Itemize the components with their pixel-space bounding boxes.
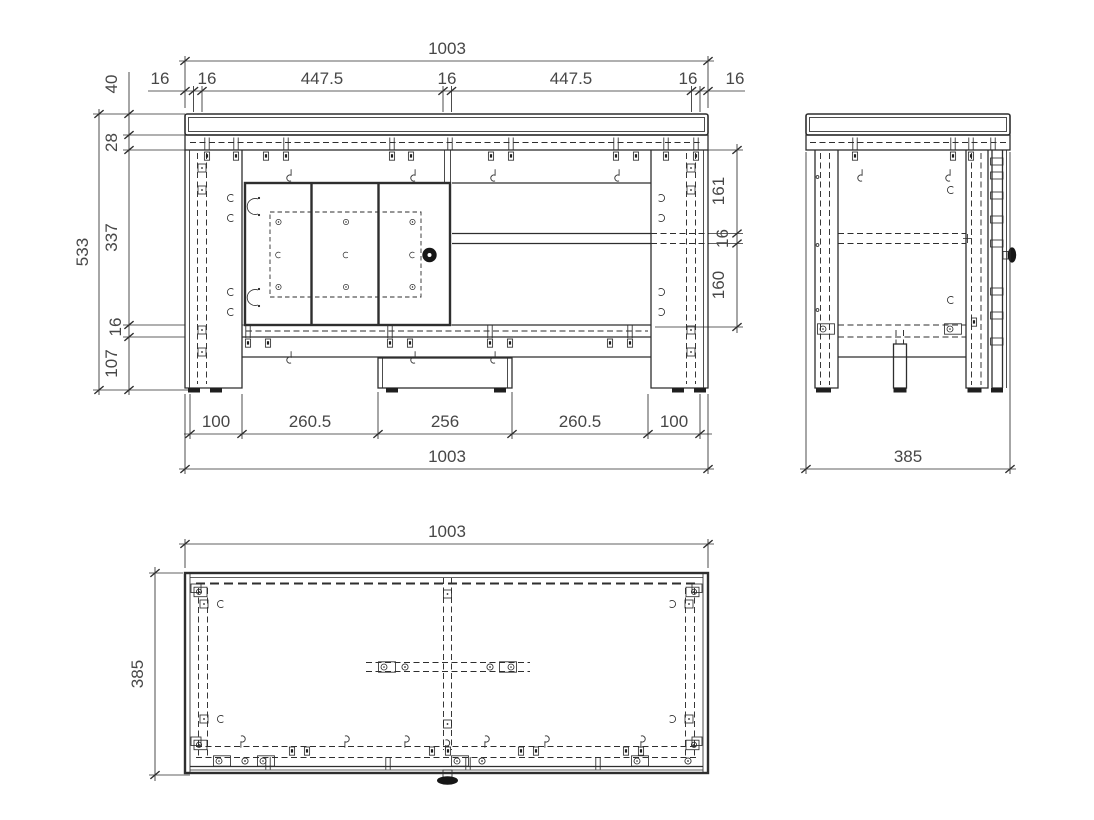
top-view <box>185 573 708 785</box>
hook-fitting-icon <box>946 169 950 181</box>
dowel-icon <box>816 244 819 247</box>
dim-label: 533 <box>73 238 92 266</box>
sq-fitting-icon <box>687 348 695 356</box>
pins-fitting-icon <box>448 138 452 151</box>
cornerfit-fitting-icon <box>191 737 207 750</box>
dim-label: 447.5 <box>550 69 593 88</box>
clip-fitting-icon <box>633 152 638 160</box>
cclip-fitting-icon <box>217 715 223 722</box>
clip-fitting-icon <box>852 152 857 160</box>
cam-fitting-icon <box>242 758 248 764</box>
right-leg <box>651 150 708 388</box>
dim-label: 40 <box>102 75 121 94</box>
clip-fitting-icon <box>233 152 238 160</box>
pins-fitting-icon <box>234 138 238 151</box>
knob-icon <box>1008 247 1016 262</box>
side-view <box>806 114 1016 393</box>
clip-fitting-icon <box>289 747 294 755</box>
cclip-fitting-icon <box>659 214 665 221</box>
cclip-fitting-icon <box>227 194 233 201</box>
dim-label: 107 <box>102 349 121 377</box>
sq-fitting-icon <box>685 600 693 608</box>
hook-fitting-icon <box>405 736 409 748</box>
cclip-fitting-icon <box>659 194 665 201</box>
front-leg-hidden <box>972 153 982 385</box>
clip-fitting-icon <box>971 318 976 326</box>
hook-fitting-icon <box>411 169 415 181</box>
pins-fitting-icon <box>991 138 995 151</box>
sq-fitting-icon <box>685 715 693 723</box>
cam-fitting-icon <box>276 219 281 224</box>
dim-label: 160 <box>709 271 728 299</box>
clip-fitting-icon <box>407 339 412 347</box>
dim-label: 256 <box>431 412 459 431</box>
cornerfit-fitting-icon <box>686 584 702 597</box>
clip-fitting-icon <box>607 339 612 347</box>
side-hardware-fittings <box>816 138 1003 346</box>
clip-fitting-icon <box>304 747 309 755</box>
sq-fitting-icon <box>444 590 452 598</box>
cam-fitting-icon <box>479 758 485 764</box>
cam-fitting-icon <box>685 758 691 764</box>
clip-fitting-icon <box>488 152 493 160</box>
sq-fitting-icon <box>198 348 206 356</box>
dim-label: 16 <box>106 318 125 337</box>
door-plank-joints <box>312 184 379 324</box>
pins-fitting-icon <box>628 326 632 339</box>
hook-fitting-icon <box>615 169 619 181</box>
cclip-fitting-icon <box>276 252 281 258</box>
pins-fitting-icon <box>951 138 955 151</box>
cclip-fitting-icon <box>343 252 348 258</box>
dim-label: 100 <box>660 412 688 431</box>
cornerfit-fitting-icon <box>686 737 702 750</box>
door-edge-profile <box>992 150 1003 388</box>
dim-label: 16 <box>713 229 732 248</box>
lock-keyhole-icon <box>428 253 432 257</box>
dim-label: 16 <box>438 69 457 88</box>
cam-fitting-icon <box>410 284 415 289</box>
pins-fitting-icon <box>386 757 390 770</box>
clip-fitting-icon <box>429 747 434 755</box>
dim-label: 260.5 <box>289 412 332 431</box>
back-panel <box>815 150 838 388</box>
dim-label: 16 <box>151 69 170 88</box>
front-leg-panel <box>966 150 988 388</box>
feet <box>188 388 706 393</box>
clip-fitting-icon <box>950 152 955 160</box>
dim-label: 16 <box>198 69 217 88</box>
dim-label: 1003 <box>428 39 466 58</box>
cam-fitting-icon <box>343 219 348 224</box>
pins-fitting-icon <box>853 138 857 151</box>
hook-fitting-icon <box>287 169 291 181</box>
clip-fitting-icon <box>283 152 288 160</box>
dim-label: 385 <box>894 447 922 466</box>
cclip-fitting-icon <box>947 296 953 303</box>
clip-fitting-icon <box>507 339 512 347</box>
dim-label: 337 <box>102 223 121 251</box>
hook-fitting-icon <box>485 736 489 748</box>
hook-fitting-icon <box>491 169 495 181</box>
clip-fitting-icon <box>487 339 492 347</box>
clip-fitting-icon <box>508 152 513 160</box>
top-panel-inner-edge <box>189 118 705 132</box>
hinge-icon <box>247 290 258 306</box>
top-view-outline <box>185 573 708 773</box>
cclip-fitting-icon <box>227 214 233 221</box>
knob-stem <box>1003 252 1008 260</box>
cam-fitting-icon <box>276 284 281 289</box>
dim-label: 16 <box>726 69 745 88</box>
pins-fitting-icon <box>509 138 513 151</box>
side-top-panel-inner <box>810 118 1007 132</box>
pins-fitting-icon <box>664 138 668 151</box>
clip-fitting-icon <box>445 747 450 755</box>
pins-fitting-icon <box>969 138 973 151</box>
dowel-icon <box>816 309 819 312</box>
front-view <box>185 114 709 393</box>
clip-fitting-icon <box>387 339 392 347</box>
clip-fitting-icon <box>623 747 628 755</box>
cam-fitting-icon <box>487 664 493 670</box>
hidden-leg-lines <box>198 153 696 384</box>
clip-fitting-icon <box>389 152 394 160</box>
knob-icon-top <box>437 776 458 785</box>
cambox-fitting-icon <box>379 662 396 672</box>
pins-fitting-icon <box>246 326 250 339</box>
dim-label: 28 <box>102 133 121 152</box>
dim-label: 16 <box>679 69 698 88</box>
cam-fitting-icon <box>402 664 408 670</box>
pins-fitting-icon <box>488 326 492 339</box>
dim-label: 1003 <box>428 522 466 541</box>
cambox-fitting-icon <box>500 662 517 672</box>
clip-fitting-icon <box>638 747 643 755</box>
clip-fitting-icon <box>518 747 523 755</box>
sq-fitting-icon <box>198 186 206 194</box>
pins-fitting-icon <box>614 138 618 151</box>
cam-fitting-icon <box>343 284 348 289</box>
cclip-fitting-icon <box>659 288 665 295</box>
left-leg <box>185 150 242 388</box>
cclip-fitting-icon <box>670 600 676 607</box>
hidden-center-rail <box>366 663 530 672</box>
pins-fitting-icon <box>205 138 209 151</box>
hook-fitting-icon <box>545 736 549 748</box>
cclip-fitting-icon <box>227 288 233 295</box>
cclip-fitting-icon <box>410 252 415 258</box>
shelf-pin-icon <box>963 234 972 243</box>
hook-fitting-icon <box>858 169 862 181</box>
clip-fitting-icon <box>533 747 538 755</box>
pins-fitting-icon <box>390 138 394 151</box>
center-partition <box>445 150 451 183</box>
pins-fitting-icon <box>694 138 698 151</box>
cclip-fitting-icon <box>227 308 233 315</box>
pins-fitting-icon <box>466 757 470 770</box>
clip-fitting-icon <box>663 152 668 160</box>
cclip-fitting-icon <box>659 308 665 315</box>
technical-drawing-page: 1003 16 16 447.5 16 447.5 16 16 533 40 2… <box>0 0 1094 820</box>
cam-fitting-icon <box>410 219 415 224</box>
cclip-fitting-icon <box>947 186 953 193</box>
clip-fitting-icon <box>408 152 413 160</box>
pins-fitting-icon <box>266 757 270 770</box>
clip-fitting-icon <box>613 152 618 160</box>
clip-fitting-icon <box>245 339 250 347</box>
hook-fitting-icon <box>641 736 645 748</box>
dim-label: 385 <box>128 660 147 688</box>
center-leg <box>894 344 907 388</box>
pins-fitting-icon <box>388 326 392 339</box>
dim-label: 447.5 <box>301 69 344 88</box>
sq-fitting-icon <box>687 164 695 172</box>
cabinet-technical-drawing: 1003 16 16 447.5 16 447.5 16 16 533 40 2… <box>0 0 1094 820</box>
back-panel-hidden <box>821 153 830 385</box>
hidden-bottom-side <box>838 325 966 337</box>
hidden-shelf-lines <box>651 234 709 244</box>
pins-fitting-icon <box>284 138 288 151</box>
hidden-side-panels-top <box>199 588 695 757</box>
dowel-icon <box>816 176 819 179</box>
sq-fitting-icon <box>200 600 208 608</box>
plinth-edges <box>383 358 508 388</box>
dim-label: 161 <box>709 177 728 205</box>
sq-fitting-icon <box>687 186 695 194</box>
clip-fitting-icon <box>204 152 209 160</box>
dim-label: 1003 <box>428 447 466 466</box>
hinge-icon <box>247 199 258 215</box>
dim-label: 100 <box>202 412 230 431</box>
hook-fitting-icon <box>345 736 349 748</box>
front-hardware-fittings <box>198 138 699 364</box>
cornerfit-fitting-icon <box>191 584 207 597</box>
sq-fitting-icon <box>198 164 206 172</box>
clip-fitting-icon <box>968 152 973 160</box>
clip-fitting-icon <box>265 339 270 347</box>
clip-fitting-icon <box>263 152 268 160</box>
top-hardware-fittings <box>191 584 702 770</box>
clip-fitting-icon <box>693 152 698 160</box>
sq-fitting-icon <box>444 720 452 728</box>
cclip-fitting-icon <box>217 600 223 607</box>
sq-fitting-icon <box>198 326 206 334</box>
clip-fitting-icon <box>627 339 632 347</box>
dim-label: 260.5 <box>559 412 602 431</box>
hidden-shelf-side <box>838 234 966 244</box>
side-feet <box>816 388 1003 393</box>
pins-fitting-icon <box>596 757 600 770</box>
hook-fitting-icon <box>241 736 245 748</box>
top-view-inner-edges <box>190 573 703 773</box>
cclip-fitting-icon <box>670 715 676 722</box>
sq-fitting-icon <box>200 715 208 723</box>
